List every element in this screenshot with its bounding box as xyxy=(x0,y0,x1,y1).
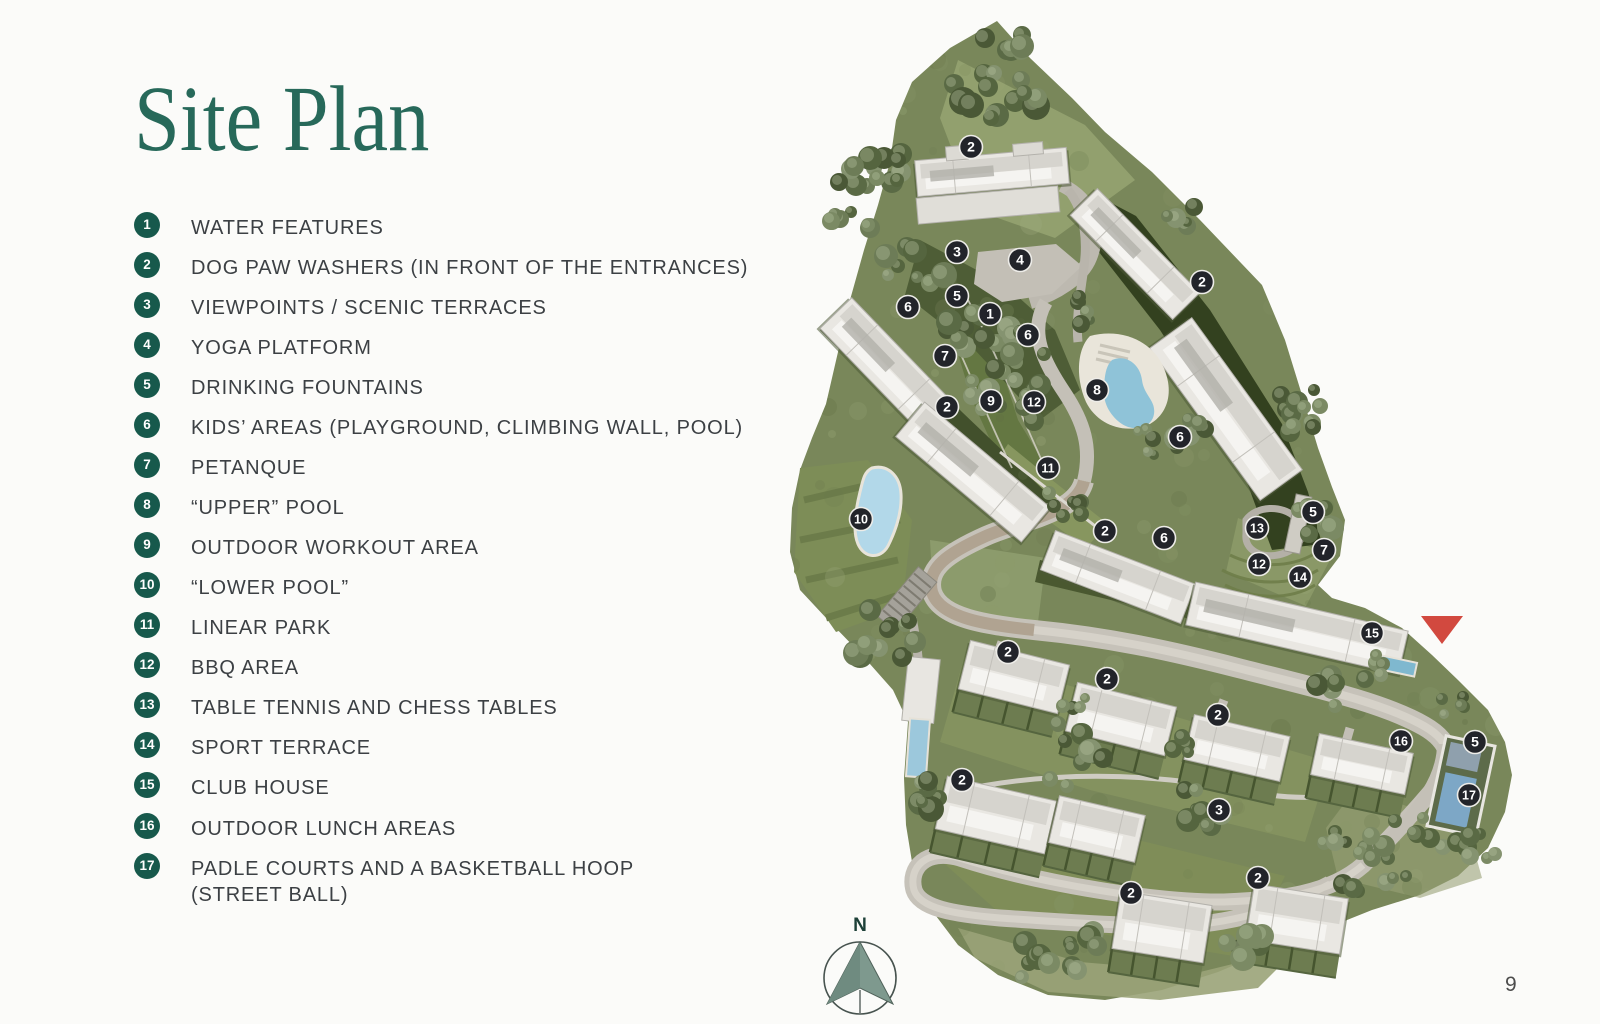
svg-text:11: 11 xyxy=(1041,462,1054,476)
svg-text:13: 13 xyxy=(1250,522,1264,536)
svg-text:12: 12 xyxy=(1027,396,1041,410)
svg-text:2: 2 xyxy=(1127,885,1135,901)
svg-text:5: 5 xyxy=(953,288,961,304)
svg-text:16: 16 xyxy=(1394,735,1408,749)
svg-text:2: 2 xyxy=(1254,870,1262,886)
svg-text:2: 2 xyxy=(1004,644,1012,660)
svg-text:2: 2 xyxy=(1198,274,1206,290)
svg-text:6: 6 xyxy=(1024,327,1032,343)
svg-text:N: N xyxy=(853,915,867,936)
svg-text:1: 1 xyxy=(986,306,994,322)
svg-text:2: 2 xyxy=(1103,671,1111,687)
svg-text:2: 2 xyxy=(1214,707,1222,723)
svg-text:6: 6 xyxy=(1176,429,1184,445)
svg-text:15: 15 xyxy=(1365,627,1379,641)
svg-text:7: 7 xyxy=(1320,542,1328,558)
svg-text:7: 7 xyxy=(941,348,949,364)
svg-text:3: 3 xyxy=(1215,802,1223,818)
svg-text:2: 2 xyxy=(967,139,975,155)
svg-text:2: 2 xyxy=(958,772,966,788)
svg-text:6: 6 xyxy=(904,299,912,315)
svg-text:5: 5 xyxy=(1471,734,1479,750)
svg-text:12: 12 xyxy=(1252,558,1266,572)
svg-text:8: 8 xyxy=(1093,382,1101,398)
svg-text:9: 9 xyxy=(987,393,995,409)
svg-text:2: 2 xyxy=(1101,523,1109,539)
svg-text:3: 3 xyxy=(953,244,961,260)
svg-text:4: 4 xyxy=(1016,252,1024,268)
svg-text:5: 5 xyxy=(1309,504,1317,520)
svg-text:17: 17 xyxy=(1462,789,1476,803)
svg-text:2: 2 xyxy=(943,399,951,415)
svg-text:14: 14 xyxy=(1293,571,1307,585)
svg-text:6: 6 xyxy=(1160,530,1168,546)
svg-text:10: 10 xyxy=(854,513,868,527)
